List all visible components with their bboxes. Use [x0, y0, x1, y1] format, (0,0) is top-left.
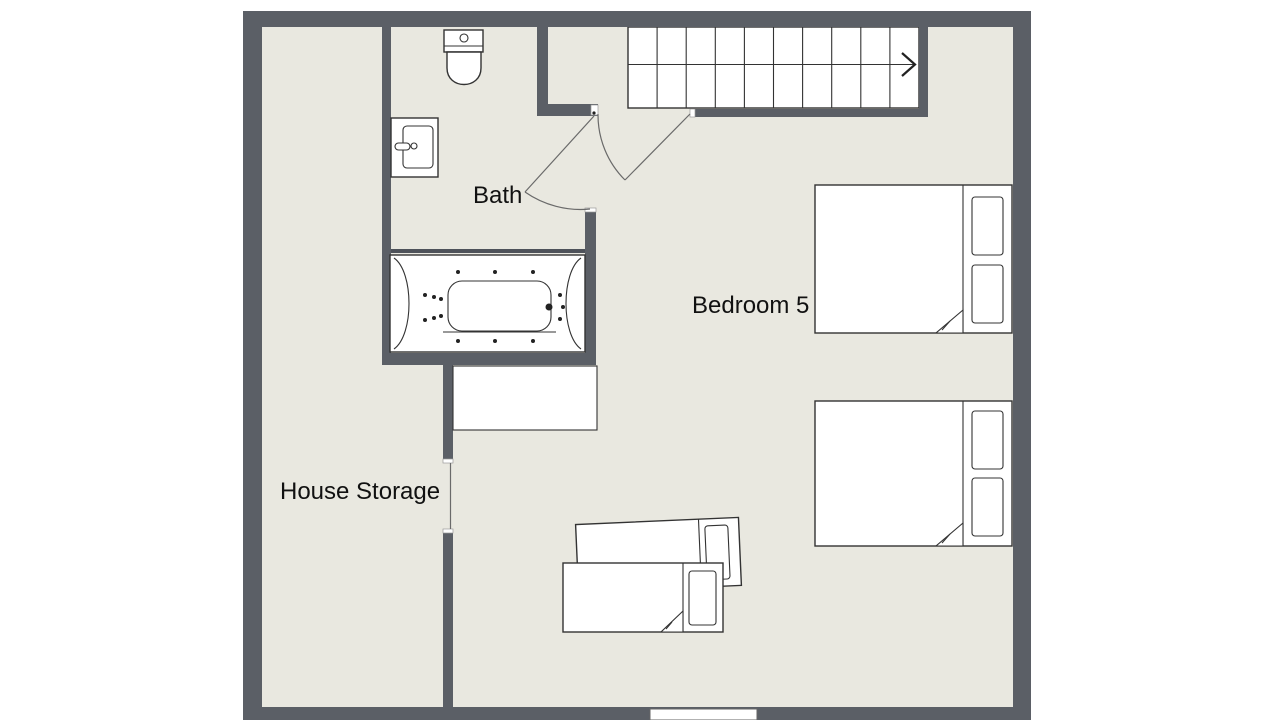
wall-storage-upper [443, 365, 453, 459]
jamb-storage-door-bottom [443, 529, 453, 533]
floorplan-canvas: Bath Bedroom 5 House Storage [0, 0, 1280, 720]
double-bed-2 [815, 401, 1012, 546]
toilet-bowl [447, 52, 481, 85]
tub-basin [448, 281, 551, 331]
window [650, 709, 757, 720]
toilet-flush-button [460, 34, 468, 42]
wall-tub-niche-bottom [382, 353, 596, 365]
pillow [972, 411, 1003, 469]
wall-right [1013, 11, 1031, 720]
wall-left [243, 11, 262, 720]
wall-storage-lower [443, 533, 453, 708]
pillow [972, 478, 1003, 536]
room-label-house-storage: House Storage [280, 478, 440, 505]
toilet [444, 30, 483, 85]
sink-drain [411, 143, 417, 149]
floorplan-drawing: Bath Bedroom 5 House Storage [0, 0, 1280, 720]
wall-stair-right [919, 27, 928, 117]
wall-top [243, 11, 1031, 27]
wall-tub-niche-top [391, 249, 585, 253]
cupboard [453, 366, 597, 430]
wall-bath-door-stub [585, 208, 596, 353]
wall-bottom [243, 707, 1031, 720]
jamb-bath-door-bottom [585, 208, 596, 212]
wall-bath-right-upper [537, 27, 548, 116]
room-label-bath: Bath [473, 182, 522, 209]
double-bed-1 [815, 185, 1012, 333]
jamb-storage-door-top [443, 459, 453, 463]
wall-stair-bottom [690, 109, 928, 117]
sink-tap [395, 143, 410, 150]
pillow [972, 197, 1003, 255]
single-bed-front [563, 563, 723, 632]
sink-vanity [391, 118, 438, 177]
staircase [628, 27, 919, 108]
room-label-bedroom5: Bedroom 5 [692, 292, 809, 319]
bath-door-hinge [592, 111, 595, 114]
pillow [689, 571, 716, 625]
bathtub-jacuzzi [390, 255, 585, 352]
pillow [972, 265, 1003, 323]
wall-bath-nook [537, 104, 598, 116]
tub-drain [546, 304, 553, 311]
jamb-landing-door [690, 109, 695, 117]
